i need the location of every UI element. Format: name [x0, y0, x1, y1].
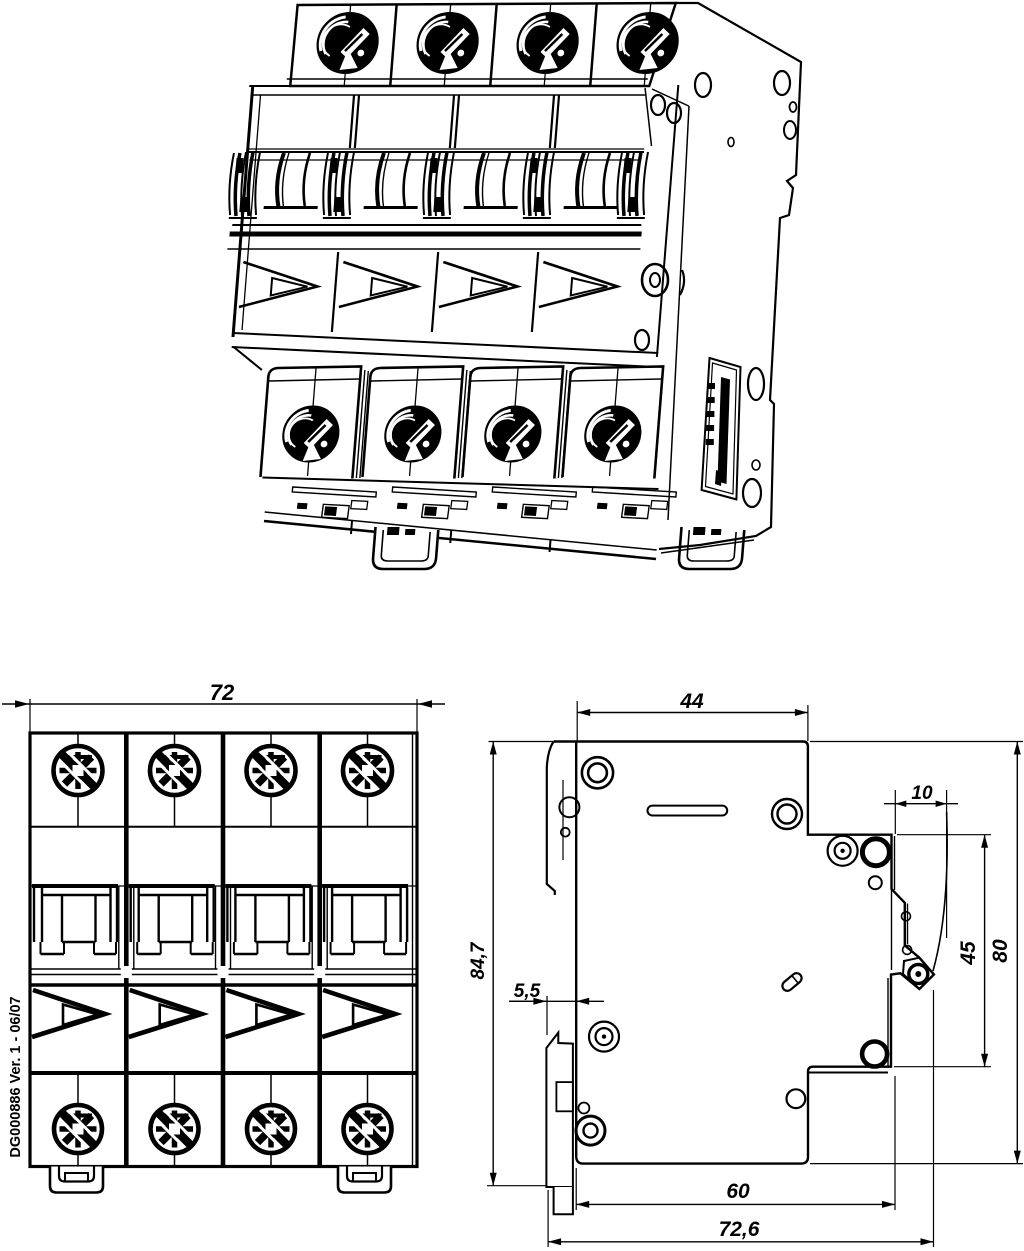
- svg-text:72,6: 72,6: [719, 1218, 760, 1241]
- svg-text:80: 80: [989, 939, 1012, 963]
- svg-text:44: 44: [679, 690, 704, 713]
- svg-text:72: 72: [210, 680, 235, 705]
- svg-text:10: 10: [911, 783, 933, 804]
- svg-text:60: 60: [726, 1180, 750, 1203]
- svg-text:DG000886 Ver. 1 - 06/07: DG000886 Ver. 1 - 06/07: [8, 996, 24, 1157]
- svg-text:5,5: 5,5: [514, 981, 541, 1002]
- svg-text:84,7: 84,7: [468, 941, 489, 979]
- svg-text:45: 45: [957, 941, 980, 966]
